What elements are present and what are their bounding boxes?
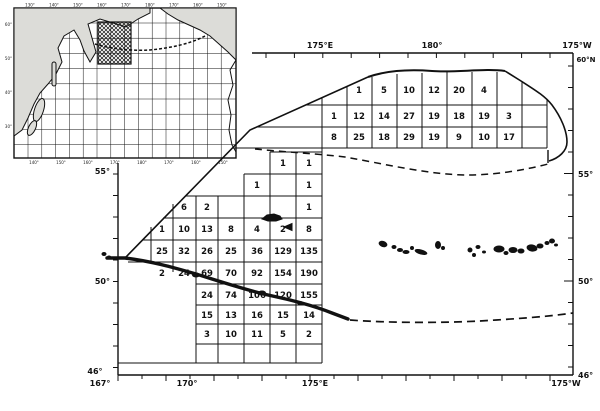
cell-value: 16 <box>251 311 263 321</box>
inset-tick-label: 140° <box>29 160 39 165</box>
island-icon <box>442 247 445 250</box>
inset-tick-label: 160° <box>97 3 107 8</box>
attu-island-icon <box>262 214 282 221</box>
survey-grid-map: 130°140°150°160°170°180°170°160°150°140°… <box>0 0 600 411</box>
cell-value: 5 <box>381 86 387 96</box>
inset-tick-label: 60° <box>5 22 12 27</box>
inset-tick-label: 170° <box>164 160 174 165</box>
cell-value: 1 <box>254 181 260 191</box>
island-icon <box>415 249 428 256</box>
cell-value: 10 <box>403 86 415 96</box>
cell-value: 20 <box>453 86 465 96</box>
right-axis-label: 50° <box>578 277 593 286</box>
cell-value: 14 <box>378 112 390 122</box>
island-icon <box>527 244 538 252</box>
inset-tick-label: 180° <box>145 3 155 8</box>
cell-value: 154 <box>274 269 292 279</box>
left-axis-label: 55° <box>95 167 110 176</box>
cell-value: 27 <box>403 112 415 122</box>
cell-value: 2 <box>159 269 165 279</box>
study-area-hatch-rect <box>98 22 131 64</box>
island-icon <box>518 249 524 253</box>
cell-value: 8 <box>331 133 337 143</box>
cell-value: 2 <box>204 203 210 213</box>
arc-island-blob <box>192 273 200 278</box>
cell-value: 4 <box>481 86 487 96</box>
cell-value: 19 <box>428 112 440 122</box>
cell-value: 92 <box>251 269 263 279</box>
bottom-left-lat-label: 46° <box>87 367 102 376</box>
cell-value: 1 <box>159 225 165 235</box>
inset-tick-label: 30° <box>5 124 12 129</box>
cell-value: 26 <box>201 247 213 257</box>
island-icon <box>483 251 486 253</box>
island-icon <box>550 239 555 243</box>
cell-value: 5 <box>280 330 286 340</box>
island-icon <box>398 249 403 252</box>
inset-tick-label: 160° <box>193 3 203 8</box>
cell-value: 1 <box>306 181 312 191</box>
cell-value: 25 <box>156 247 168 257</box>
island-icon <box>403 251 409 254</box>
aleutian-islands-icon <box>102 214 558 258</box>
cell-value: 25 <box>353 133 365 143</box>
island-icon <box>509 248 517 253</box>
cell-value: 13 <box>201 225 213 235</box>
cell-value: 1 <box>331 112 337 122</box>
inset-tick-label: 50° <box>5 56 12 61</box>
inset-tick-label: 150° <box>217 3 227 8</box>
cell-value: 10 <box>225 330 237 340</box>
inset-tick-label: 170° <box>169 3 179 8</box>
cell-value: 15 <box>201 311 213 321</box>
cell-value: 19 <box>428 133 440 143</box>
cell-value: 25 <box>225 247 237 257</box>
bottom-axis-label: 167° <box>90 379 111 388</box>
inset-tick-label: 150° <box>56 160 66 165</box>
island-arc-line <box>107 258 348 319</box>
cell-value: 29 <box>403 133 415 143</box>
bottom-axis-label: 170° <box>177 379 198 388</box>
island-icon <box>411 247 414 250</box>
cell-value: 1 <box>306 203 312 213</box>
cell-value: 70 <box>225 269 237 279</box>
north-boundary-line <box>368 70 505 77</box>
cell-value: 2 <box>306 330 312 340</box>
cell-value: 8 <box>228 225 234 235</box>
top-axis-label: 175°W <box>562 41 592 50</box>
inset-tick-label: 40° <box>5 90 12 95</box>
south-dashed-line <box>350 313 573 322</box>
bottom-axis-label: 175°E <box>302 379 328 388</box>
cell-value: 1 <box>356 86 362 96</box>
island-icon <box>436 242 441 249</box>
inset-tick-label: 170° <box>121 3 131 8</box>
cell-value: 24 <box>201 291 213 301</box>
island-icon <box>537 244 543 248</box>
island-icon <box>504 252 508 255</box>
island-icon <box>476 246 480 249</box>
cell-value: 17 <box>503 133 515 143</box>
inset-tick-label: 150° <box>73 3 83 8</box>
inset-tick-label: 180° <box>137 160 147 165</box>
island-icon <box>468 248 472 252</box>
cell-value: 3 <box>506 112 512 122</box>
island-icon <box>392 246 396 249</box>
inset-overview-map: 130°140°150°160°170°180°170°160°150°140°… <box>5 3 236 166</box>
inset-tick-label: 140° <box>49 3 59 8</box>
cell-value: 19 <box>478 112 490 122</box>
cell-value: 12 <box>353 112 365 122</box>
inset-tick-label: 130° <box>25 3 35 8</box>
island-icon <box>494 246 504 252</box>
komandorski-island-icon <box>102 253 106 256</box>
cell-value: 14 <box>303 311 315 321</box>
island-icon <box>555 244 558 246</box>
cell-value: 190 <box>300 269 318 279</box>
cell-value: 13 <box>225 311 237 321</box>
shelf-edge-dashed-line <box>255 149 548 175</box>
island-icon <box>473 254 476 257</box>
cell-value: 135 <box>300 247 318 257</box>
cell-value: 1 <box>280 159 286 169</box>
cell-value: 1 <box>306 159 312 169</box>
bottom-axis-label: 175°W <box>551 379 581 388</box>
cell-value: 15 <box>277 311 289 321</box>
cell-value: 6 <box>181 203 187 213</box>
figure-scan: 130°140°150°160°170°180°170°160°150°140°… <box>0 0 600 411</box>
cell-value: 8 <box>306 225 312 235</box>
cell-value: 4 <box>254 225 260 235</box>
cell-value: 18 <box>453 112 465 122</box>
island-icon <box>378 240 387 247</box>
cell-value: 36 <box>251 247 263 257</box>
cell-value: 12 <box>428 86 440 96</box>
cell-value: 74 <box>225 291 237 301</box>
corner-lat-label: 60°N <box>576 56 595 64</box>
inset-tick-label: 160° <box>83 160 93 165</box>
top-axis-label: 180° <box>422 41 443 50</box>
cell-value: 3 <box>204 330 210 340</box>
cell-value: 32 <box>178 247 190 257</box>
cell-value: 9 <box>456 133 462 143</box>
top-axis-label: 175°E <box>307 41 333 50</box>
sakhalin-island <box>52 62 56 86</box>
arc-island-blob <box>297 301 303 305</box>
inset-tick-label: 160° <box>191 160 201 165</box>
cell-value: 129 <box>274 247 292 257</box>
right-axis-label: 55° <box>578 170 593 179</box>
cell-value: 18 <box>378 133 390 143</box>
cell-value: 155 <box>300 291 318 301</box>
cell-value: 10 <box>478 133 490 143</box>
arc-island-blob <box>258 291 266 296</box>
left-axis-label: 50° <box>95 277 110 286</box>
cell-value: 11 <box>251 330 263 340</box>
cell-value: 10 <box>178 225 190 235</box>
island-icon <box>545 242 549 245</box>
